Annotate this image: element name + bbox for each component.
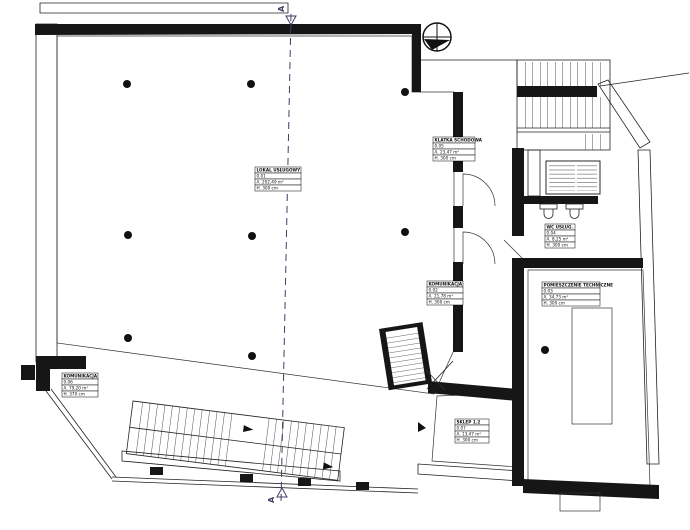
svg-text:H. 300 cm: H. 300 cm: [547, 243, 568, 248]
svg-text:A. 79,20 m²: A. 79,20 m²: [64, 386, 89, 391]
svg-text:0.05: 0.05: [435, 144, 445, 149]
note-text-block: [546, 161, 600, 194]
column: [401, 88, 409, 96]
svg-text:A. 202,49 m²: A. 202,49 m²: [257, 180, 285, 185]
svg-text:H. 300 cm: H. 300 cm: [544, 301, 565, 306]
column: [541, 346, 549, 354]
room-label-wc: WC USŁUG. 0.04 A. 8,25 m² H. 300 cm: [545, 224, 575, 248]
svg-text:H. 300 cm: H. 300 cm: [429, 300, 450, 305]
svg-text:0.07: 0.07: [457, 426, 467, 431]
section-label-bottom: A: [267, 496, 276, 503]
svg-text:POMIESZCZENIE TECHNICZNE: POMIESZCZENIE TECHNICZNE: [544, 283, 614, 288]
column: [124, 231, 132, 239]
column: [247, 80, 255, 88]
svg-text:0.04: 0.04: [547, 231, 557, 236]
section-label-top: A: [277, 5, 286, 12]
svg-text:KOMUNIKACJA: KOMUNIKACJA: [64, 374, 98, 379]
floor-plan-svg: A A LOKAL USŁUGOWY 0.01 A. 202,49 m² H. …: [0, 0, 690, 530]
svg-text:WC USŁUG.: WC USŁUG.: [547, 225, 574, 230]
svg-text:LOKAL USŁUGOWY: LOKAL USŁUGOWY: [257, 168, 302, 173]
svg-text:KOMUNIKACJA: KOMUNIKACJA: [429, 282, 463, 287]
svg-text:A. 8,25 m²: A. 8,25 m²: [547, 237, 569, 242]
column: [248, 352, 256, 360]
floor-plan-canvas: A A LOKAL USŁUGOWY 0.01 A. 202,49 m² H. …: [0, 0, 690, 530]
column: [248, 232, 256, 240]
svg-text:H. 300 cm: H. 300 cm: [457, 438, 478, 443]
column: [401, 228, 409, 236]
svg-text:0.06: 0.06: [64, 380, 74, 385]
column: [123, 80, 131, 88]
room-label-komunikacja-06: KOMUNIKACJA 0.06 A. 79,20 m² H. 370 cm: [62, 373, 98, 397]
svg-text:SKLEP 1.2: SKLEP 1.2: [457, 420, 481, 425]
svg-text:A. 21,78 m²: A. 21,78 m²: [429, 294, 454, 299]
svg-text:H. 300 cm: H. 300 cm: [435, 156, 456, 161]
room-label-lokal-uslugowy: LOKAL USŁUGOWY 0.01 A. 202,49 m² H. 300 …: [255, 167, 301, 191]
svg-text:A. 13,47 m²: A. 13,47 m²: [457, 432, 482, 437]
room-label-sklep-1-2: SKLEP 1.2 0.07 A. 13,47 m² H. 300 cm: [455, 419, 489, 443]
svg-text:H. 300 cm: H. 300 cm: [257, 186, 278, 191]
svg-text:A. 23,47 m²: A. 23,47 m²: [435, 150, 460, 155]
room-label-komunikacja-02: KOMUNIKACJA 0.02 A. 21,78 m² H. 300 cm: [427, 281, 463, 305]
svg-text:A. 34,73 m²: A. 34,73 m²: [544, 295, 569, 300]
north-arrow-icon: [423, 23, 451, 51]
column: [124, 334, 132, 342]
svg-text:H. 370 cm: H. 370 cm: [64, 392, 85, 397]
svg-text:0.03: 0.03: [544, 289, 554, 294]
svg-text:KLATKA SCHODOWA: KLATKA SCHODOWA: [435, 138, 483, 143]
svg-text:0.02: 0.02: [429, 288, 439, 293]
svg-text:0.01: 0.01: [257, 174, 267, 179]
